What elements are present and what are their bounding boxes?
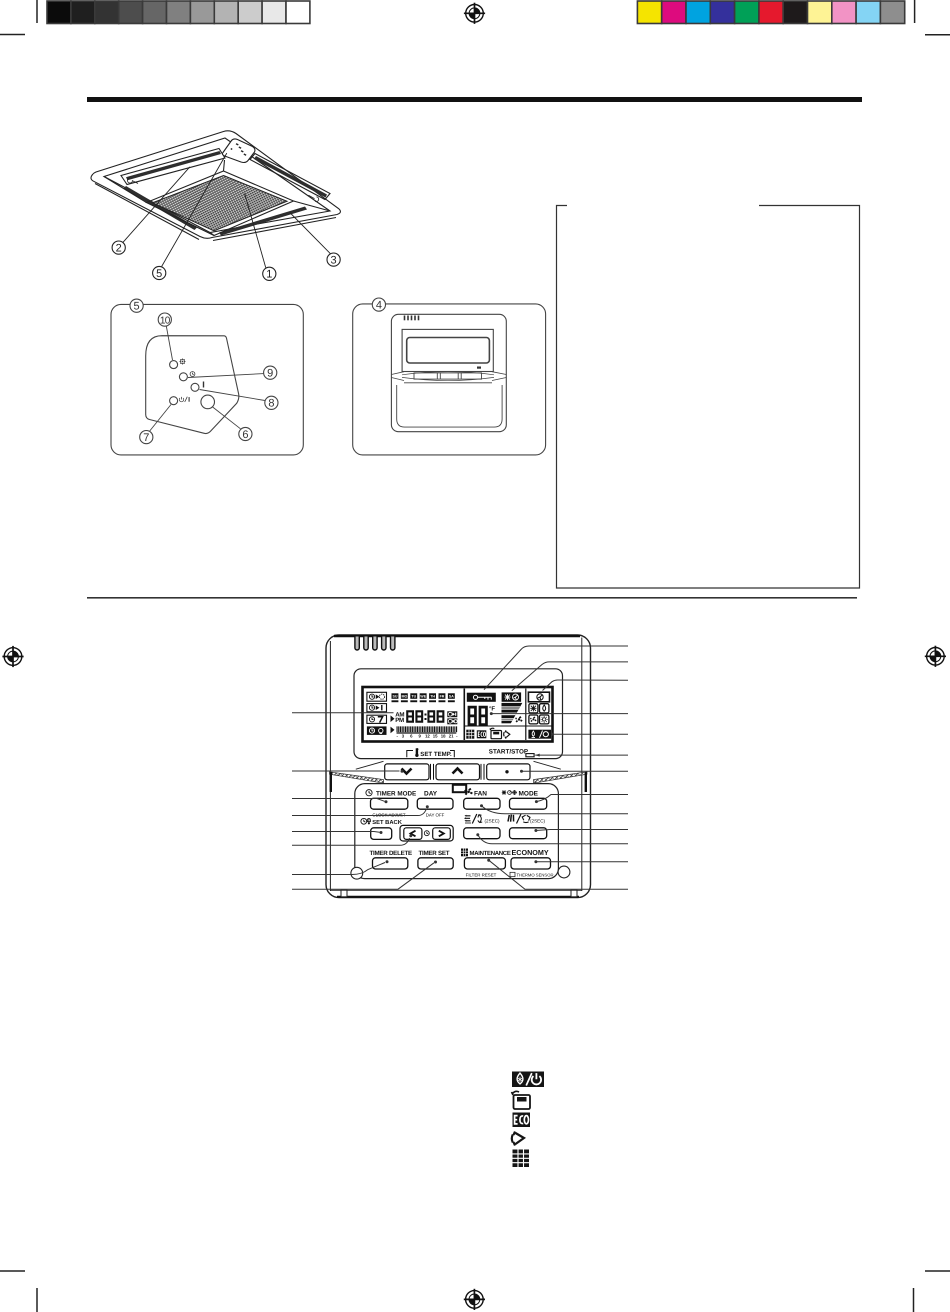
svg-text:9: 9 <box>267 368 273 380</box>
svg-text:WE: WE <box>420 695 426 699</box>
svg-text:DAY OFF: DAY OFF <box>426 813 445 818</box>
svg-text:TH: TH <box>430 695 435 699</box>
svg-text:MAINTENANCE: MAINTENANCE <box>470 850 511 857</box>
svg-text:FAN: FAN <box>474 791 487 798</box>
svg-text:TIMER MODE: TIMER MODE <box>376 791 416 798</box>
svg-text:ECONOMY: ECONOMY <box>512 848 549 857</box>
svg-text:3: 3 <box>331 254 337 266</box>
svg-text:SET TEMP.: SET TEMP. <box>420 751 452 758</box>
svg-text:PM: PM <box>395 717 404 724</box>
svg-text:MODE: MODE <box>519 791 539 798</box>
svg-text:(2SEC): (2SEC) <box>530 819 546 824</box>
svg-text:FR: FR <box>440 695 445 699</box>
svg-text:4: 4 <box>376 299 382 311</box>
svg-text:SA: SA <box>449 695 454 699</box>
svg-text:TU: TU <box>411 695 416 699</box>
svg-text:TIMER SET: TIMER SET <box>419 850 450 857</box>
svg-text:5: 5 <box>156 268 162 280</box>
svg-text:18: 18 <box>441 734 446 739</box>
svg-text:5: 5 <box>134 301 140 313</box>
svg-text:15: 15 <box>433 734 438 739</box>
svg-text:SET BACK: SET BACK <box>372 819 402 826</box>
svg-text:1: 1 <box>266 269 272 281</box>
svg-text:7: 7 <box>143 432 149 444</box>
svg-text:SU: SU <box>393 695 398 699</box>
svg-text:21: 21 <box>449 734 454 739</box>
svg-text:°F: °F <box>489 706 495 713</box>
svg-text:START/STOP: START/STOP <box>489 749 528 756</box>
svg-text:6: 6 <box>242 429 248 441</box>
svg-text:8: 8 <box>268 398 274 410</box>
svg-text:12: 12 <box>425 734 430 739</box>
svg-text:DAY: DAY <box>424 791 438 798</box>
svg-text:2: 2 <box>116 242 122 254</box>
svg-text:(2SEC): (2SEC) <box>485 819 501 824</box>
svg-text:THERMO SENSOR: THERMO SENSOR <box>517 872 554 877</box>
svg-text:TIMER DELETE: TIMER DELETE <box>370 850 412 857</box>
svg-text:10: 10 <box>160 315 171 326</box>
svg-text:FILTER RESET: FILTER RESET <box>466 873 497 878</box>
svg-text:MO: MO <box>402 695 408 699</box>
